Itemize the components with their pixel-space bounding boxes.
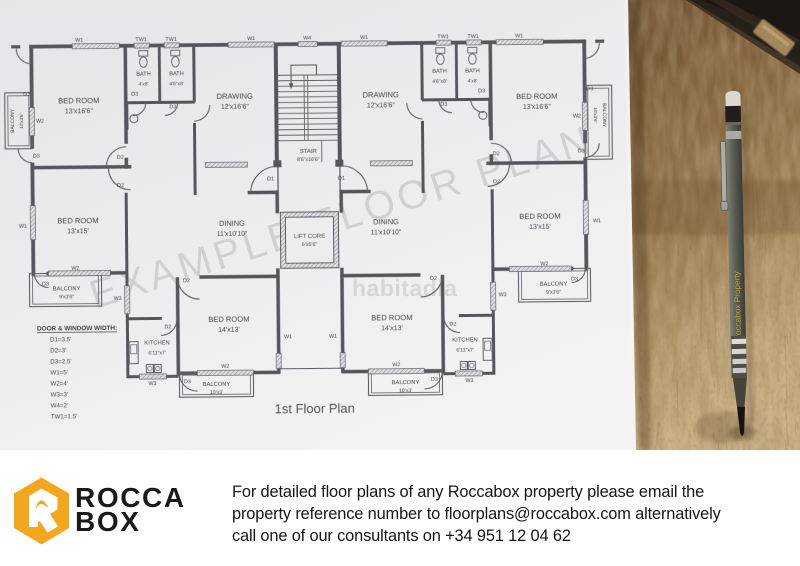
svg-text:12'x16'6": 12'x16'6" [221,104,250,111]
svg-text:4'6"x8': 4'6"x8' [432,79,447,85]
svg-text:Roccabox Property: Roccabox Property [732,270,743,341]
svg-text:12'x16'6": 12'x16'6" [367,102,396,109]
svg-text:BALCONY: BALCONY [10,108,16,133]
svg-text:W1=5': W1=5' [50,369,68,376]
svg-text:DOOR & WINDOW WIDTH:: DOOR & WINDOW WIDTH: [37,325,117,333]
svg-text:D2: D2 [493,151,500,157]
svg-text:4'x8': 4'x8' [139,82,149,88]
svg-text:D1: D1 [338,176,345,182]
svg-text:10'x3'6": 10'x3'6" [593,107,598,123]
svg-text:W1: W1 [329,334,337,340]
svg-text:W3: W3 [114,296,122,302]
svg-text:TW1: TW1 [135,37,146,43]
svg-text:TW1=1.5': TW1=1.5' [51,413,78,420]
svg-text:W1: W1 [75,38,83,44]
svg-text:D3: D3 [431,377,438,383]
svg-text:1st Floor Plan: 1st Floor Plan [275,401,355,417]
svg-text:BED ROOM: BED ROOM [516,92,557,101]
svg-text:BED ROOM: BED ROOM [208,315,249,324]
svg-text:W3: W3 [148,381,156,387]
svg-text:D3: D3 [578,148,585,154]
svg-text:D3: D3 [571,276,578,282]
svg-text:BALCONY: BALCONY [203,381,231,388]
svg-text:BED ROOM: BED ROOM [57,216,98,225]
svg-text:14'x13': 14'x13' [381,325,403,332]
svg-text:13'x16'6": 13'x16'6" [65,108,94,115]
svg-text:D2: D2 [183,278,190,284]
svg-text:10'x3': 10'x3' [210,390,223,396]
svg-text:D2=3': D2=3' [50,347,66,354]
svg-text:D2: D2 [493,179,500,185]
svg-text:BATH: BATH [136,72,151,78]
svg-text:W2: W2 [573,113,581,119]
svg-text:13'x16'6": 13'x16'6" [523,104,552,111]
svg-text:D2: D2 [430,276,437,282]
svg-text:D2: D2 [117,183,124,189]
svg-text:11'x10'10": 11'x10'10" [371,229,402,236]
svg-text:BATH: BATH [169,71,184,77]
svg-text:BED ROOM: BED ROOM [519,212,560,221]
svg-text:6'11"x7': 6'11"x7' [148,350,166,356]
svg-text:BED ROOM: BED ROOM [58,96,99,105]
svg-text:STAIR: STAIR [300,148,318,155]
svg-text:BATH: BATH [432,69,447,75]
svg-text:W1: W1 [247,36,255,42]
svg-text:LIFT CORE: LIFT CORE [294,233,325,240]
svg-text:D3: D3 [478,88,485,94]
svg-text:BATH: BATH [465,68,480,74]
svg-text:KITCHEN: KITCHEN [144,339,170,346]
svg-text:D3=2.5': D3=2.5' [50,358,71,365]
svg-text:D1: D1 [267,176,274,182]
svg-text:11'x10'10": 11'x10'10" [217,231,248,238]
svg-text:W4: W4 [303,35,311,41]
svg-text:8'6"x16'6": 8'6"x16'6" [297,157,320,163]
svg-text:BALCONY: BALCONY [540,281,568,288]
svg-text:DRAWING: DRAWING [362,90,399,99]
svg-text:D2: D2 [449,322,456,328]
svg-text:BALCONY: BALCONY [53,285,81,292]
svg-text:KITCHEN: KITCHEN [452,336,478,343]
svg-text:TW1: TW1 [437,34,448,40]
svg-text:TW1: TW1 [165,37,176,43]
svg-text:6'11"x7': 6'11"x7' [456,347,474,353]
svg-text:13'x15': 13'x15' [529,224,551,231]
svg-text:9'x3'6": 9'x3'6" [59,294,74,300]
svg-text:DINING: DINING [373,217,399,226]
svg-text:DINING: DINING [219,219,245,228]
svg-text:BALCONY: BALCONY [392,379,420,386]
svg-text:9'x3'6": 9'x3'6" [546,290,561,296]
svg-text:W2=4': W2=4' [50,380,68,387]
svg-text:W1: W1 [593,218,601,224]
svg-text:W1: W1 [360,35,368,41]
svg-text:D2: D2 [117,155,124,161]
svg-text:W1: W1 [19,224,27,230]
svg-text:D1=3.5': D1=3.5' [50,336,71,343]
svg-text:D3: D3 [131,92,138,98]
svg-text:BED ROOM: BED ROOM [371,313,412,322]
svg-text:14'x13': 14'x13' [218,327,240,334]
svg-text:W4=2': W4=2' [51,402,69,409]
svg-text:TW1: TW1 [467,34,478,40]
svg-text:D3: D3 [23,92,30,98]
svg-text:W3: W3 [465,378,473,384]
svg-text:10'x3'6": 10'x3'6" [19,112,24,128]
svg-text:W2: W2 [36,119,44,125]
svg-text:4'6"x8': 4'6"x8' [169,81,184,87]
svg-text:W3=3': W3=3' [51,391,69,398]
svg-text:6'x6'6": 6'x6'6" [302,242,318,248]
svg-text:D3: D3 [42,282,49,288]
svg-text:BALCONY: BALCONY [601,103,607,128]
svg-text:W1: W1 [284,334,292,340]
svg-text:D2: D2 [164,324,171,330]
svg-text:W3: W3 [499,292,507,298]
svg-text:DRAWING: DRAWING [216,92,253,101]
svg-text:10'x3': 10'x3' [399,388,412,394]
svg-text:W2: W2 [540,261,548,267]
svg-text:D3: D3 [440,102,447,108]
svg-text:W2: W2 [392,362,400,368]
svg-text:W2: W2 [71,266,79,272]
svg-text:D3: D3 [33,154,40,160]
svg-text:D3: D3 [586,86,593,92]
svg-text:13'x15': 13'x15' [67,228,89,235]
svg-text:4'x8': 4'x8' [468,78,478,84]
svg-text:D3: D3 [169,104,176,110]
svg-text:W1: W1 [515,33,523,39]
svg-text:D3: D3 [184,379,191,385]
svg-text:W2: W2 [221,364,229,370]
